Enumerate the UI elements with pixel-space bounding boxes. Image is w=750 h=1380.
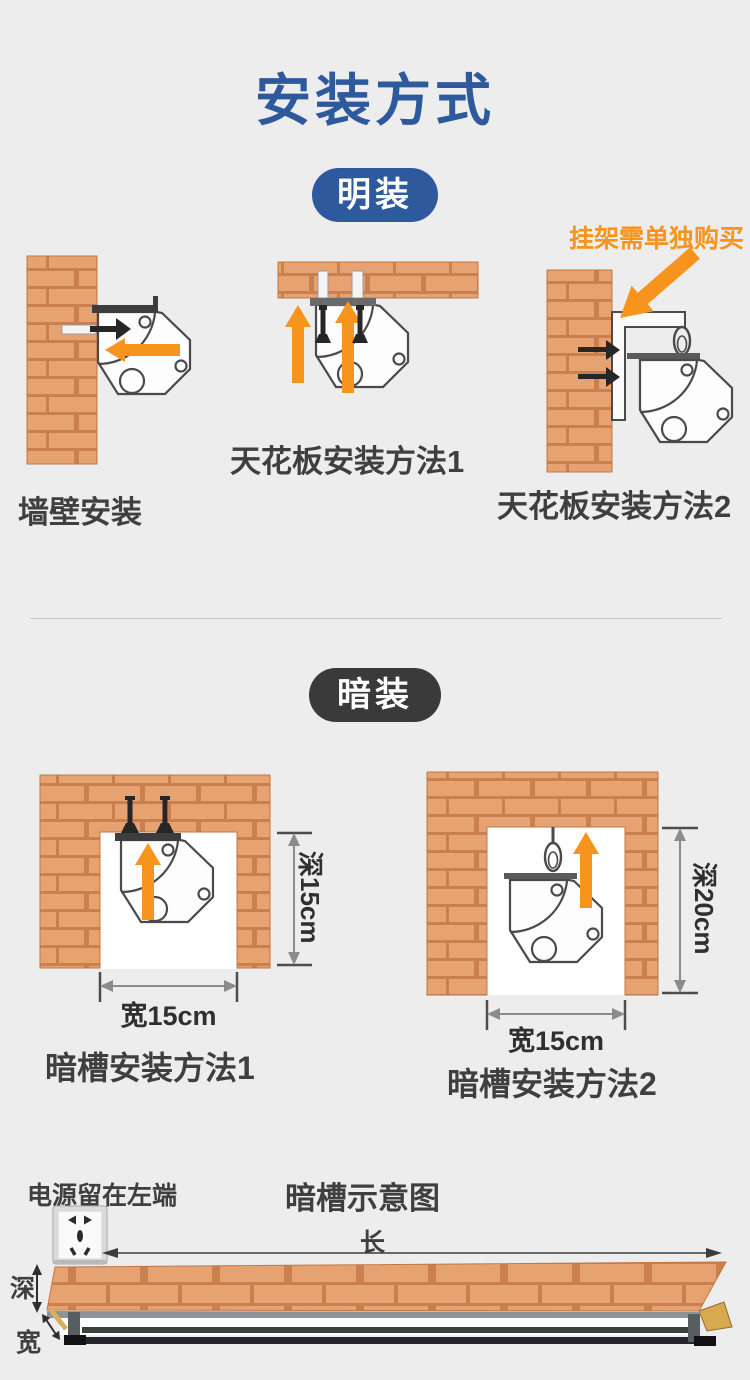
ceiling-method1-diagram	[255, 255, 485, 405]
arrow-up-icon	[285, 305, 311, 383]
depth-dimension	[277, 833, 312, 965]
surface-mount-badge: 明装	[312, 168, 438, 222]
brick-slot-strip	[47, 1262, 726, 1311]
installation-infographic: 安装方式 明装 挂架需单独购买 墙壁安装 天花板安装方法1 天花板安装方法2 暗…	[0, 0, 750, 1380]
concealed-method2-label: 暗槽安装方法2	[447, 1059, 657, 1105]
depth-dimension	[662, 828, 698, 993]
concealed-method1-label: 暗槽安装方法1	[45, 1043, 255, 1089]
annotation-arrow-icon	[620, 247, 700, 318]
schematic-title: 暗槽示意图	[285, 1173, 440, 1218]
concealed-mount-badge: 暗装	[309, 668, 441, 722]
ceiling-method2-diagram	[540, 245, 750, 480]
carabiner-icon	[674, 327, 690, 355]
ceiling-method2-label: 天花板安装方法2	[497, 481, 731, 526]
width-dimension	[100, 972, 237, 1002]
ceiling-method1-label: 天花板安装方法1	[230, 436, 464, 481]
slot-schematic-diagram	[0, 1240, 750, 1380]
brick-wall	[547, 270, 612, 472]
concealed-method1-diagram	[30, 765, 340, 1035]
brick-wall	[27, 256, 97, 464]
track-rail	[47, 1311, 716, 1346]
section-divider	[30, 618, 722, 619]
curtain-motor-icon	[627, 353, 732, 442]
wall-install-diagram	[20, 250, 240, 465]
page-title: 安装方式	[0, 56, 750, 137]
wall-install-label: 墙壁安装	[18, 487, 142, 532]
slot-end-cap	[699, 1302, 732, 1331]
depth-dimension	[32, 1264, 42, 1313]
width-dimension	[487, 1000, 625, 1030]
concealed-method2-diagram	[420, 760, 750, 1032]
wall-anchor-icon	[352, 271, 363, 298]
brick-ceiling	[278, 262, 478, 298]
wall-anchor-icon	[318, 271, 328, 298]
length-dimension	[102, 1248, 722, 1258]
